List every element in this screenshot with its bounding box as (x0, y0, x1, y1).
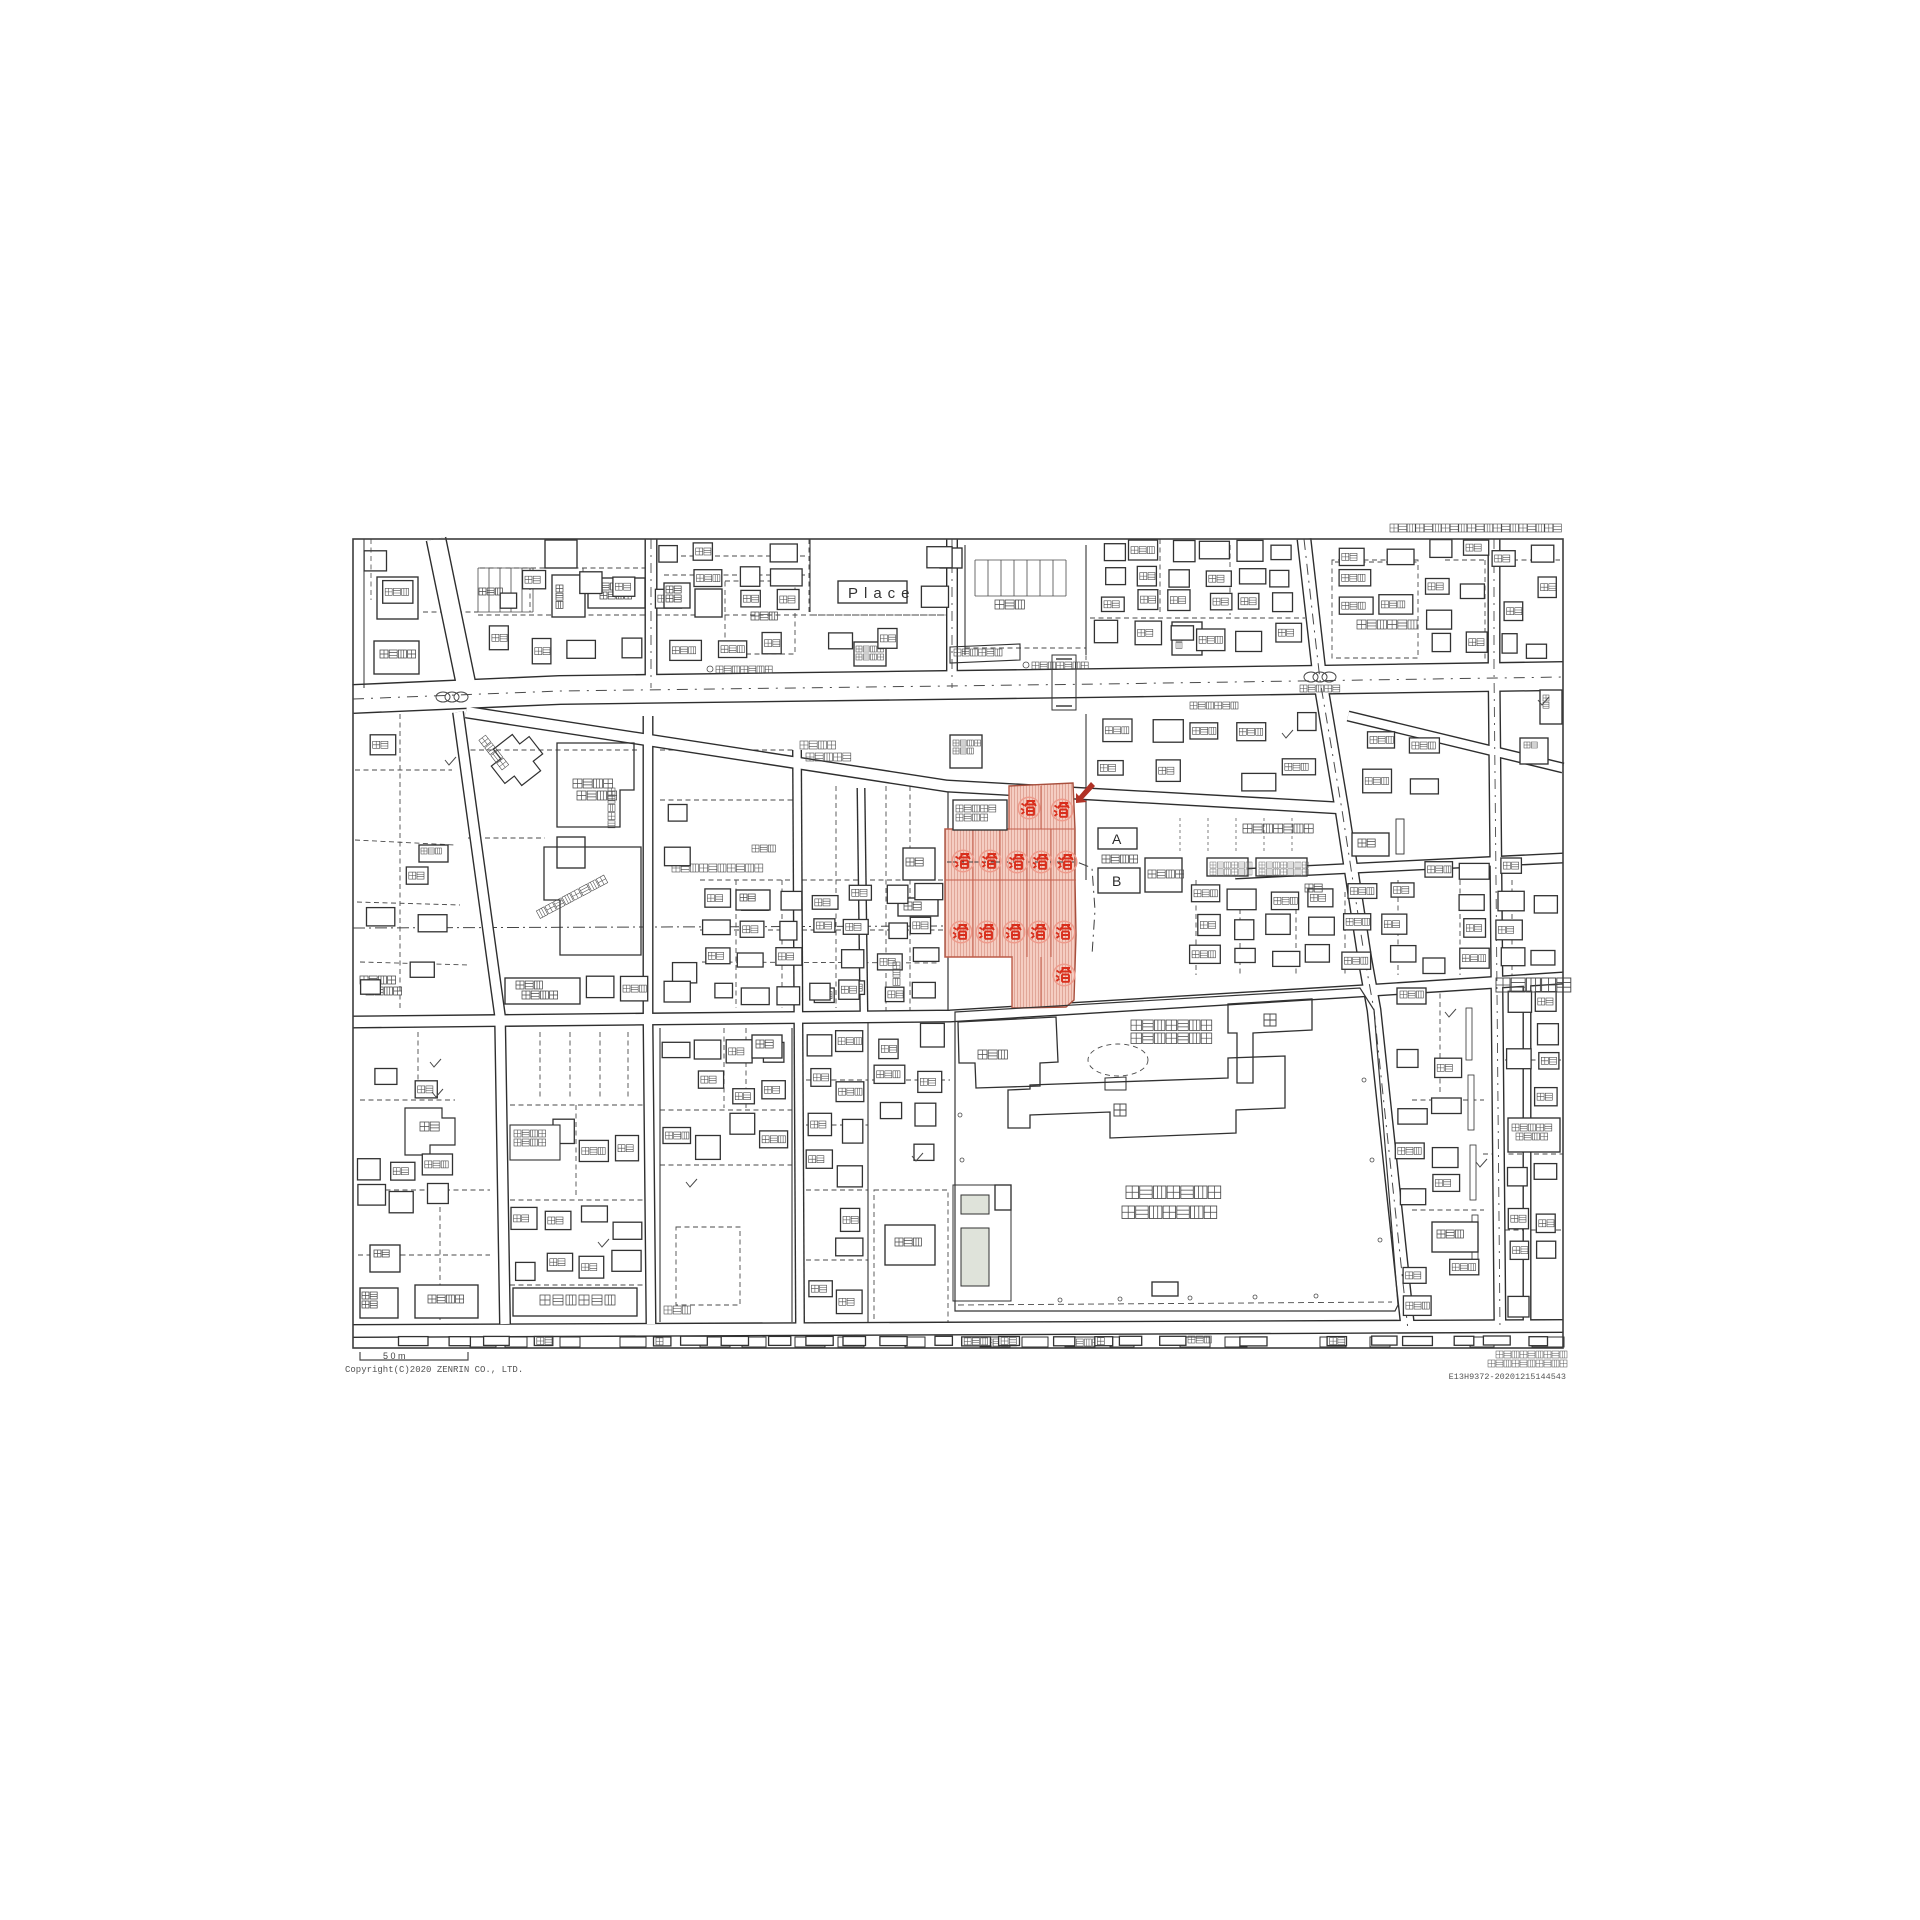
svg-text:A: A (1112, 831, 1122, 847)
svg-text:E13H9372-20201215144543: E13H9372-20201215144543 (1449, 1372, 1566, 1382)
svg-text:5 0 m: 5 0 m (383, 1351, 406, 1361)
svg-text:Copyright(C)2020 ZENRIN CO., L: Copyright(C)2020 ZENRIN CO., LTD. (345, 1365, 523, 1375)
svg-text:B: B (1112, 873, 1121, 889)
svg-text:Place: Place (848, 585, 916, 602)
